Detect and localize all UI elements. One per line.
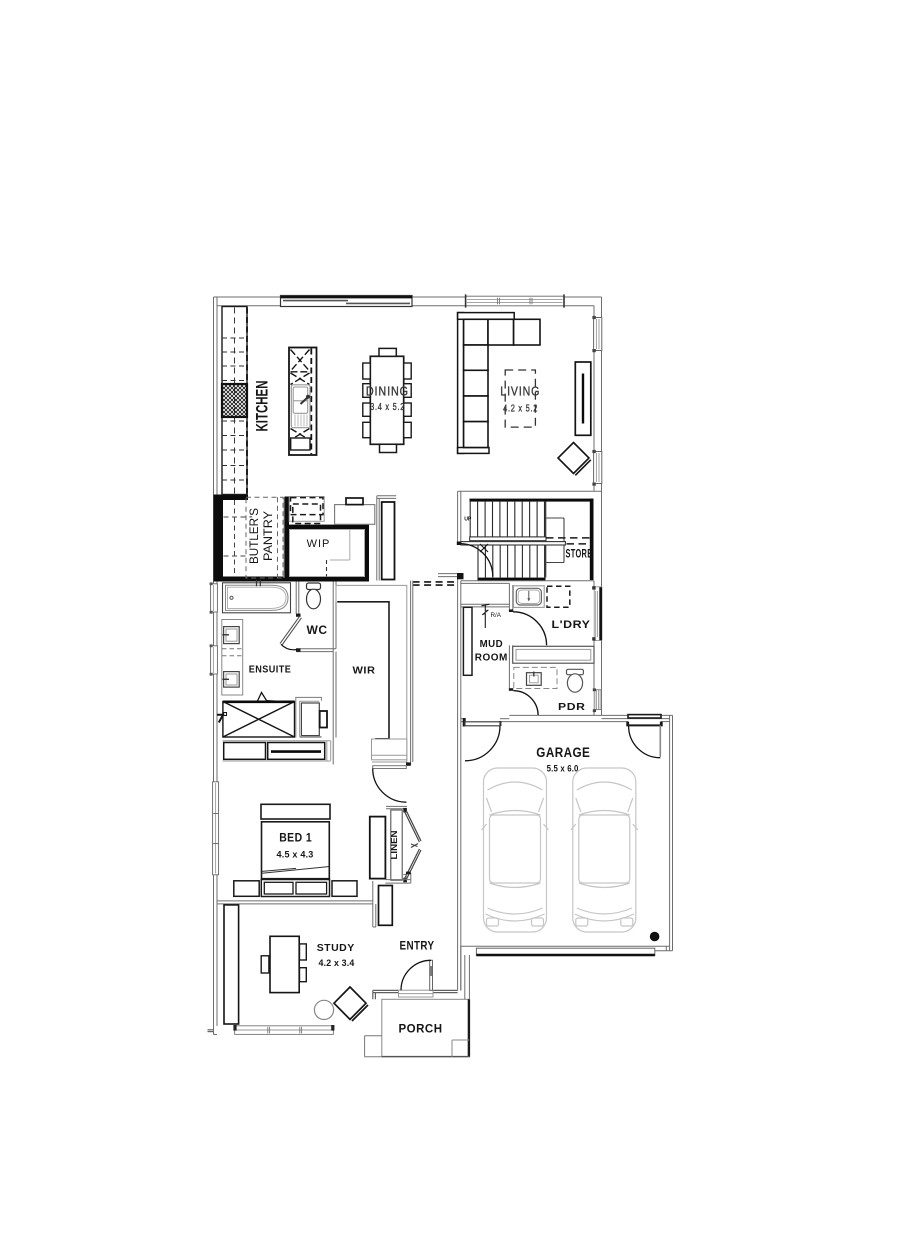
svg-text:BED 1: BED 1 <box>279 833 312 845</box>
svg-text:3.4 x 5.2: 3.4 x 5.2 <box>370 402 405 413</box>
svg-text:ENSUITE: ENSUITE <box>249 664 292 676</box>
svg-text:4.2 x 3.4: 4.2 x 3.4 <box>319 958 355 969</box>
svg-text:ENTRY: ENTRY <box>400 939 435 953</box>
svg-text:L'DRY: L'DRY <box>552 619 591 631</box>
svg-text:4.2 x 5.2: 4.2 x 5.2 <box>503 404 538 415</box>
svg-text:STUDY: STUDY <box>317 942 355 954</box>
svg-text:C: C <box>652 934 657 941</box>
svg-text:BUTLER'S: BUTLER'S <box>249 508 261 564</box>
svg-text:LIVING: LIVING <box>500 385 540 399</box>
svg-text:KITCHEN: KITCHEN <box>254 381 272 432</box>
svg-text:PORCH: PORCH <box>399 1022 443 1036</box>
svg-text:GARAGE: GARAGE <box>536 745 590 760</box>
svg-text:DINING: DINING <box>366 385 409 399</box>
svg-text:WIR: WIR <box>353 665 376 677</box>
svg-text:MUD: MUD <box>480 639 504 650</box>
svg-text:WC: WC <box>307 623 328 637</box>
svg-text:UP: UP <box>464 517 472 523</box>
svg-text:STORE: STORE <box>566 549 593 561</box>
svg-text:R/A: R/A <box>491 612 502 619</box>
svg-text:5.5 x 6.0: 5.5 x 6.0 <box>547 764 579 774</box>
svg-text:ROOM: ROOM <box>475 653 508 664</box>
svg-text:LINEN: LINEN <box>390 830 399 859</box>
svg-text:WIP: WIP <box>307 538 331 550</box>
svg-text:PDR: PDR <box>558 702 586 713</box>
svg-text:PANTRY: PANTRY <box>263 511 275 561</box>
svg-text:4.5 x 4.3: 4.5 x 4.3 <box>277 849 314 860</box>
